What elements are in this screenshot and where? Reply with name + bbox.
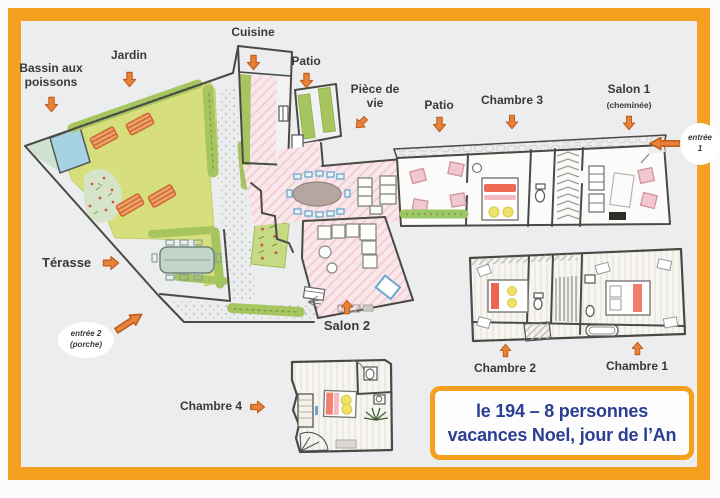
label-chambre-4: Chambre 4 bbox=[180, 399, 265, 415]
label-salon-2: Salon 2 bbox=[308, 299, 386, 334]
caption-box: le 194 – 8 personnes vacances Noel, jour… bbox=[430, 386, 694, 460]
arrow-down-icon bbox=[246, 54, 261, 71]
bed4 bbox=[324, 390, 357, 417]
label-text: Chambre 3 bbox=[481, 94, 543, 108]
label-text: Chambre 4 bbox=[180, 400, 242, 414]
label-jardin: Jardin bbox=[96, 49, 162, 88]
label-piece-de-vie: Pièce de vie bbox=[344, 83, 406, 131]
right-wing bbox=[394, 135, 670, 226]
label-text: Patio bbox=[291, 55, 320, 69]
label-text: Jardin bbox=[111, 49, 147, 63]
caption-line-2: vacances Noel, jour de l’An bbox=[448, 423, 677, 447]
label-text: Chambre 2 bbox=[474, 362, 536, 376]
label-text: Patio bbox=[424, 99, 453, 113]
label-entree-1: entrée 1 bbox=[680, 123, 720, 165]
bedroom4-block bbox=[292, 360, 392, 452]
label-text: Bassin aux poissons bbox=[17, 62, 85, 90]
label-chambre-2: Chambre 2 bbox=[464, 343, 546, 376]
label-text: Pièce de vie bbox=[347, 83, 403, 111]
label-patio-2: Patio bbox=[406, 99, 472, 133]
arrow-left-icon bbox=[648, 136, 682, 151]
arrow-up-icon bbox=[499, 343, 512, 358]
label-salon-1: Salon 1 (cheminée) bbox=[587, 83, 671, 131]
caption-line-1: le 194 – 8 personnes bbox=[476, 399, 648, 423]
label-text: entrée bbox=[688, 133, 712, 144]
arrow-right-icon bbox=[102, 255, 120, 271]
bedroom-block bbox=[470, 249, 685, 341]
label-text: Salon 1 bbox=[608, 83, 651, 97]
arrow-down-icon bbox=[299, 72, 314, 89]
label-note: (cheminée) bbox=[607, 101, 652, 111]
arrow-down-left-icon bbox=[350, 112, 371, 133]
arrow-down-icon bbox=[44, 96, 59, 113]
label-text: Salon 2 bbox=[324, 319, 370, 334]
label-text: Chambre 1 bbox=[606, 360, 668, 374]
arrow-right-icon bbox=[250, 400, 266, 415]
arrow-down-icon bbox=[622, 115, 636, 131]
dining-table bbox=[293, 182, 341, 206]
label-entree-2: entrée 2 (porche) bbox=[58, 322, 114, 358]
toilet bbox=[536, 184, 546, 202]
arrow-down-icon bbox=[122, 71, 137, 88]
fireplace bbox=[609, 212, 626, 220]
label-chambre-1: Chambre 1 bbox=[596, 341, 678, 374]
label-chambre-3: Chambre 3 bbox=[470, 94, 554, 130]
label-text: entrée 2 bbox=[71, 329, 102, 340]
arrow-up-icon bbox=[631, 341, 644, 356]
label-text: (porche) bbox=[70, 340, 102, 351]
wardrobe bbox=[298, 394, 313, 427]
label-terasse: Térasse bbox=[42, 254, 119, 272]
label-text: 1 bbox=[698, 144, 702, 155]
arrow-up-icon bbox=[340, 299, 354, 315]
arrow-down-icon bbox=[505, 114, 519, 130]
arrow-down-icon bbox=[432, 116, 447, 133]
label-patio-1: Patio bbox=[273, 55, 339, 89]
scanned-floor-plan-page: Bassin aux poissons Jardin Cuisine Patio… bbox=[0, 0, 720, 498]
label-bassin-aux-poissons: Bassin aux poissons bbox=[8, 62, 94, 113]
label-text: Cuisine bbox=[231, 26, 274, 40]
label-text: Térasse bbox=[42, 256, 91, 271]
